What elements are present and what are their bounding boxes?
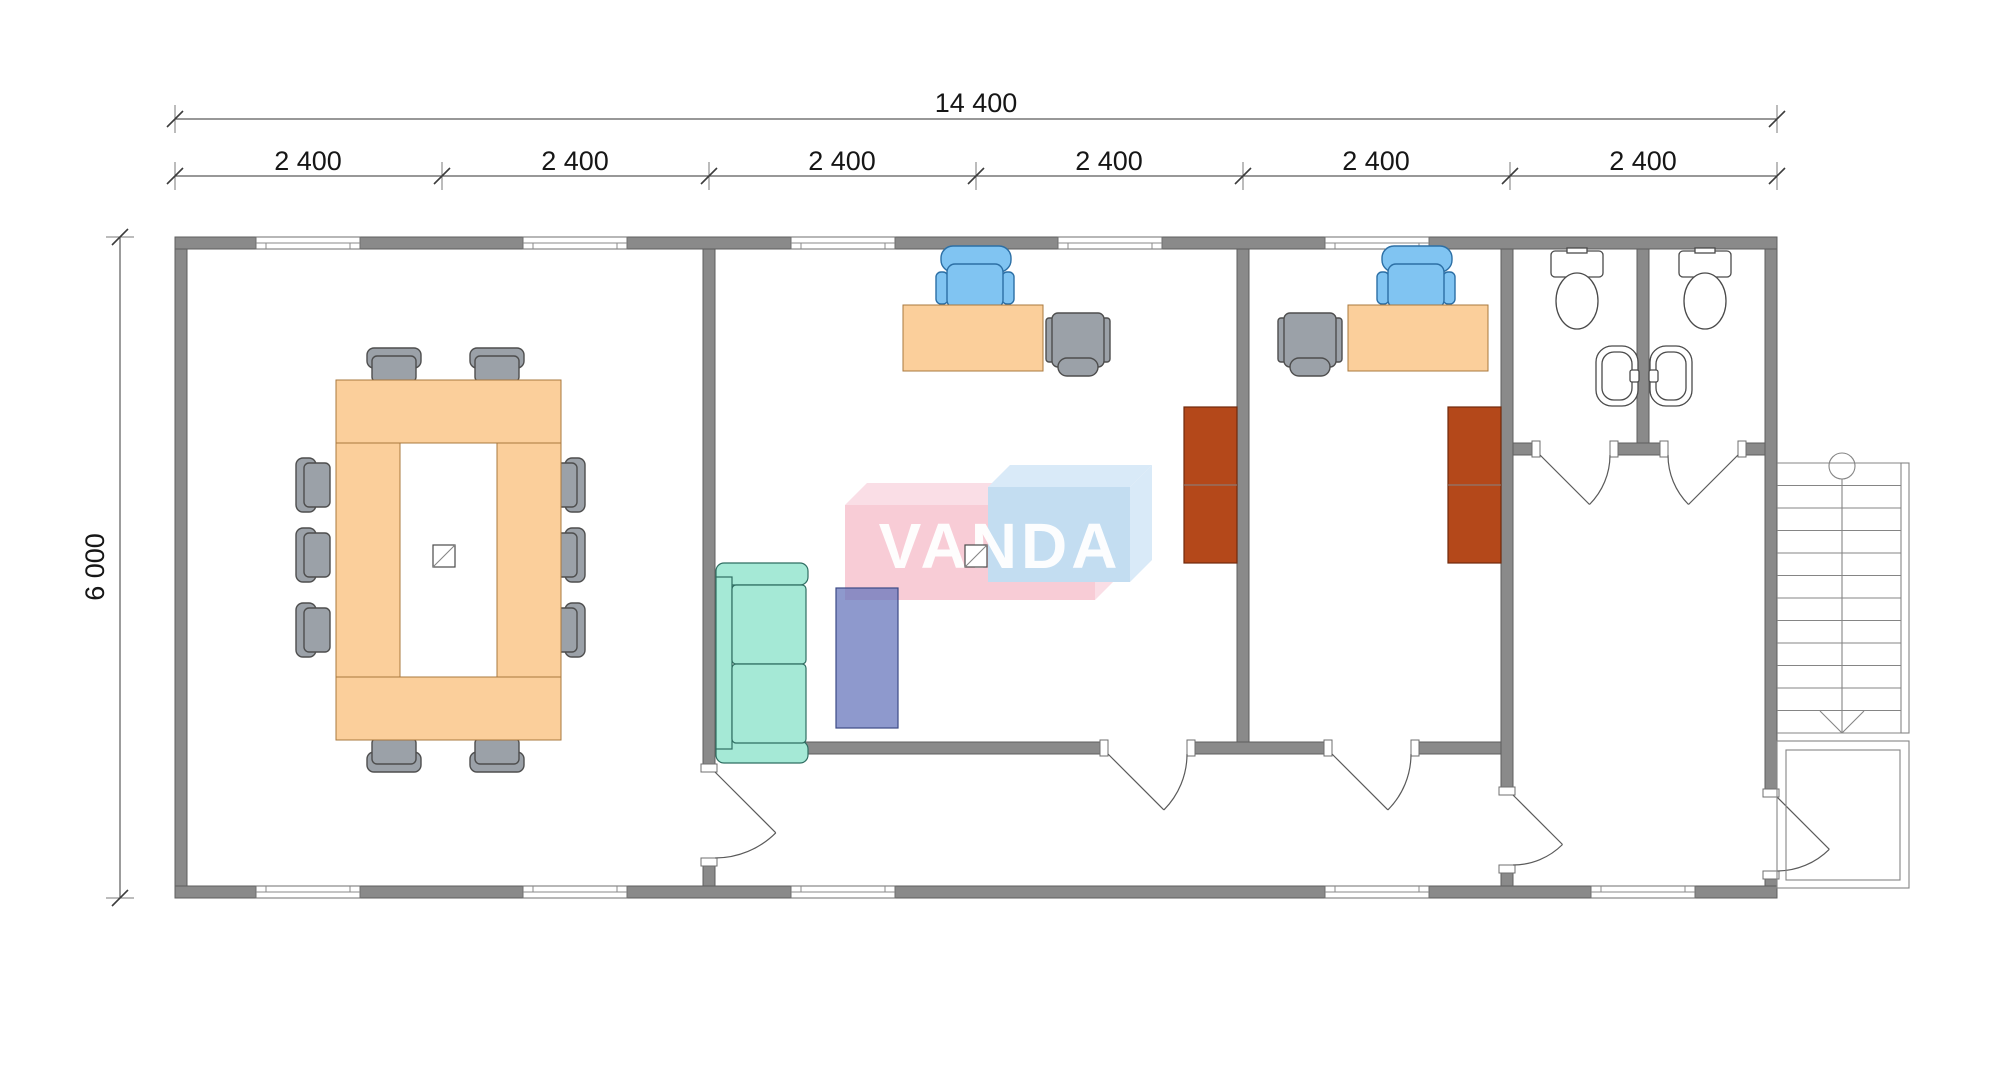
toilet-icon xyxy=(1679,248,1731,329)
segment-label: 2 400 xyxy=(808,146,876,176)
segment-label: 2 400 xyxy=(1609,146,1677,176)
corridor-wall-segment xyxy=(1195,742,1324,754)
door-icon-wc-left xyxy=(1532,441,1618,505)
window-icon xyxy=(1325,886,1429,898)
exterior-wall-right-upper xyxy=(1765,249,1777,789)
window-icon xyxy=(256,237,360,249)
cabinet-icon xyxy=(1184,407,1237,563)
sofa-icon xyxy=(716,563,808,763)
window-icon xyxy=(523,237,627,249)
segment-label: 2 400 xyxy=(1342,146,1410,176)
guest-chair-icon xyxy=(1278,313,1342,376)
window-icon xyxy=(523,886,627,898)
door-icon-wc-right xyxy=(1660,441,1746,505)
door-icon-entry xyxy=(1763,789,1829,879)
door-icon-corridor-hall xyxy=(1499,787,1563,873)
left-dimension-height: 6 000 xyxy=(80,229,134,906)
window-icon xyxy=(791,886,895,898)
window-icon xyxy=(791,237,895,249)
stairs-icon xyxy=(1777,453,1909,733)
bathroom-wall-segment xyxy=(1618,443,1660,455)
wall-bathroom-divider xyxy=(1637,249,1649,443)
toilet-icon xyxy=(1551,248,1603,329)
office-2 xyxy=(1278,246,1501,563)
exterior-wall-right-lower xyxy=(1765,879,1777,886)
rug-icon xyxy=(836,588,898,728)
total-width-label: 14 400 xyxy=(935,88,1018,118)
segment-dimensions: 2 400 2 400 2 400 2 400 2 400 2 400 xyxy=(167,146,1785,190)
bathroom-wall-segment xyxy=(1513,443,1532,455)
height-label: 6 000 xyxy=(80,533,110,601)
window-icon xyxy=(256,886,360,898)
door-icon-office2 xyxy=(1324,740,1419,810)
floor-box-icon xyxy=(433,545,455,567)
exterior-wall-left xyxy=(175,249,187,886)
wall-office1-office2 xyxy=(1237,249,1249,742)
vanda-watermark: VANDA xyxy=(845,465,1152,600)
window-icon xyxy=(1591,886,1695,898)
floor-plan-drawing: 14 400 2 400 2 400 2 400 2 400 2 400 2 4… xyxy=(0,0,2000,1076)
door-icon-office1 xyxy=(1100,740,1195,810)
exterior-wall-bottom xyxy=(175,886,1777,898)
window-icon xyxy=(1058,237,1162,249)
watermark-text: VANDA xyxy=(879,510,1122,582)
landing-icon xyxy=(1777,741,1909,888)
desk-icon xyxy=(903,305,1043,371)
door-icon-conference xyxy=(701,764,776,866)
floor-box-icon xyxy=(965,545,987,567)
office-chair-icon xyxy=(1377,246,1455,308)
wall-conference-office1-lower xyxy=(703,866,715,886)
wall-office2-hall-upper xyxy=(1501,249,1513,787)
wall-conference-office1-upper xyxy=(703,249,715,764)
segment-label: 2 400 xyxy=(541,146,609,176)
conference-room xyxy=(296,348,585,772)
office-chair-icon xyxy=(936,246,1014,308)
cabinet-icon xyxy=(1448,407,1501,563)
corridor-wall-segment xyxy=(1411,742,1501,754)
floor-plan-page: 14 400 2 400 2 400 2 400 2 400 2 400 2 4… xyxy=(0,0,2000,1076)
staircase xyxy=(1777,453,1909,888)
top-dimension-total: 14 400 xyxy=(167,88,1785,133)
guest-chair-icon xyxy=(1046,313,1110,376)
sink-icon xyxy=(1596,346,1639,406)
segment-label: 2 400 xyxy=(1075,146,1143,176)
wall-office2-hall-lower xyxy=(1501,873,1513,886)
sink-icon xyxy=(1649,346,1692,406)
desk-icon xyxy=(1348,305,1488,371)
bathroom-wall-segment xyxy=(1746,443,1765,455)
segment-label: 2 400 xyxy=(274,146,342,176)
